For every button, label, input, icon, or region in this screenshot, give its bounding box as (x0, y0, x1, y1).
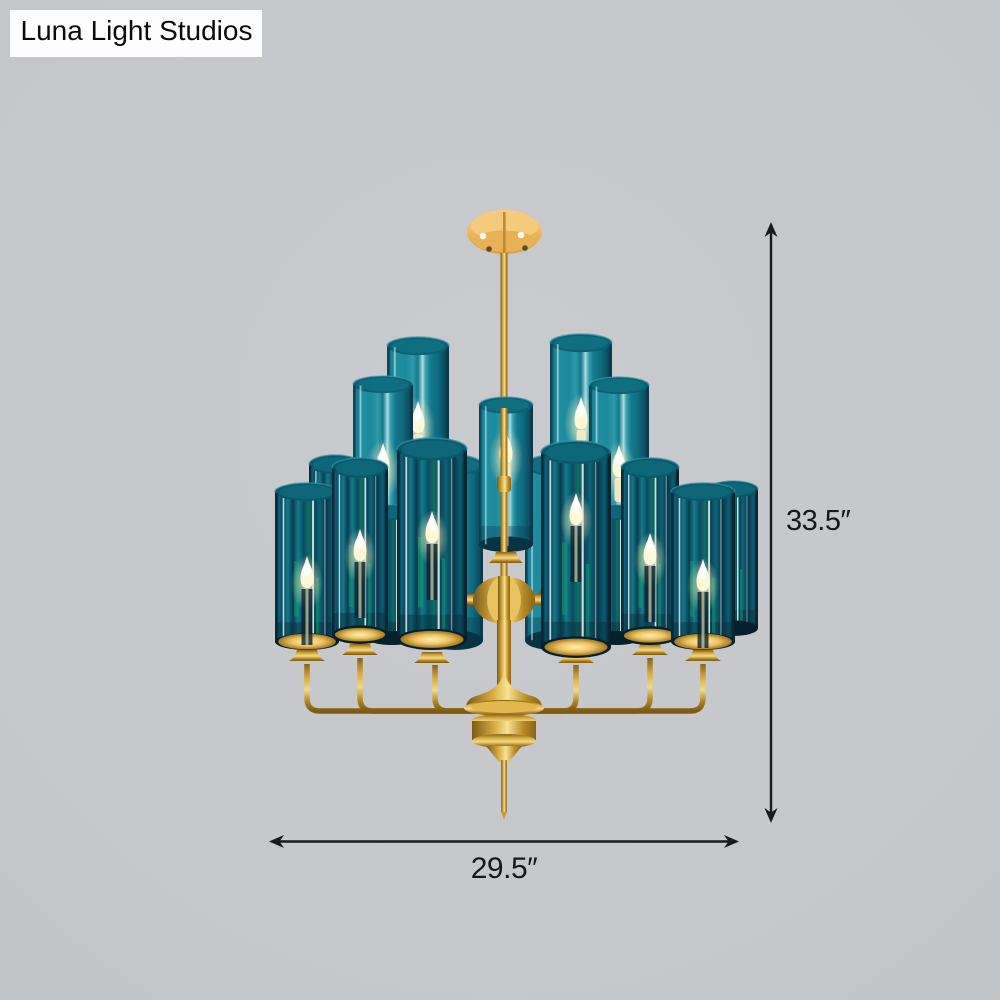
svg-text:33.5″: 33.5″ (786, 505, 850, 537)
svg-text:29.5″: 29.5″ (471, 852, 538, 885)
svg-text:Luna Light Studios: Luna Light Studios (21, 15, 253, 46)
